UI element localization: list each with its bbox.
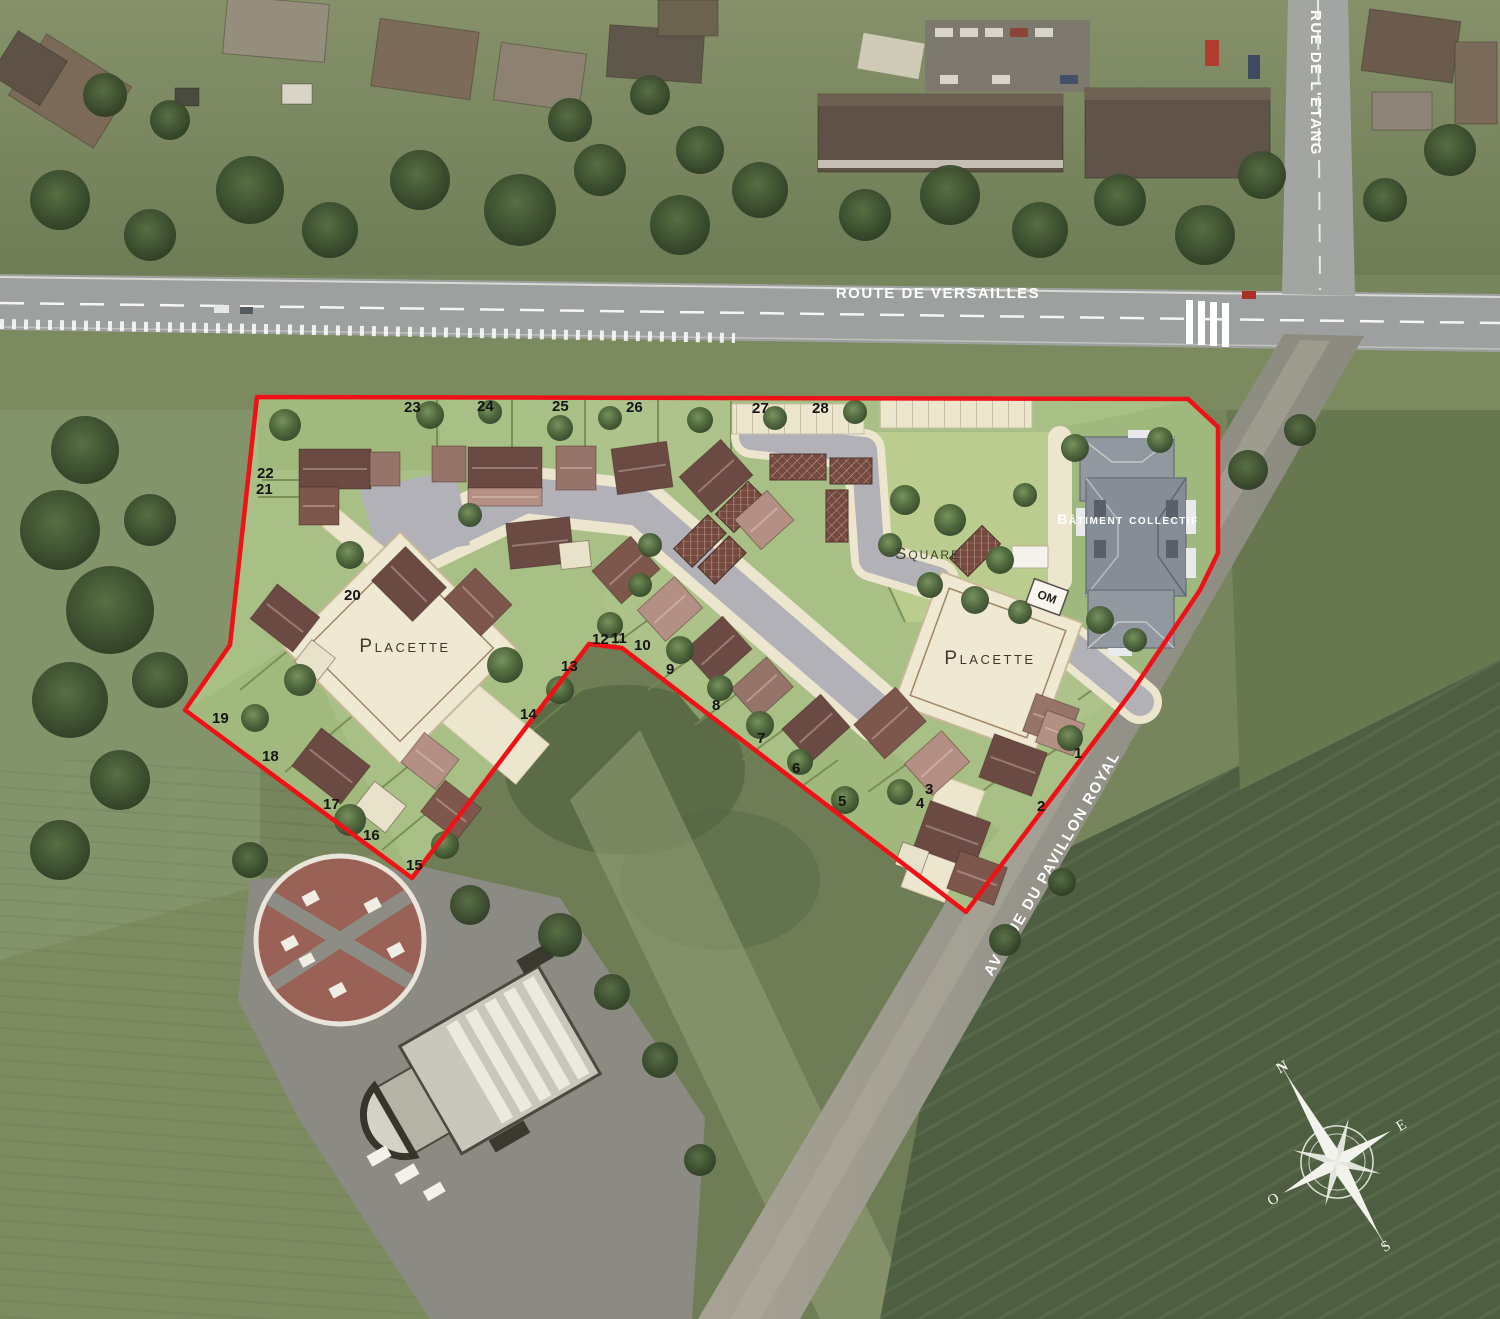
square-label: Square [895,544,961,563]
tree [458,503,482,527]
tree [839,189,891,241]
tree [487,647,523,683]
tree [484,174,556,246]
tree [934,504,966,536]
lot-number: 28 [812,400,829,417]
tree [684,1144,716,1176]
house-roof [559,541,592,570]
tree [666,636,694,664]
tree [887,779,913,805]
lot-number: 22 [257,465,274,482]
lot-number: 12 [592,631,609,648]
car [240,307,253,314]
lot-number: 19 [212,710,229,727]
tree [598,406,622,430]
route-de-versailles-label: ROUTE DE VERSAILLES [836,285,1040,302]
tree [1048,868,1076,896]
tree [30,820,90,880]
lot-number: 16 [363,827,380,844]
lot-number: 24 [477,398,494,415]
aerial-canvas: ROUTE DE VERSAILLES RUE DE L'ETANG AVENU… [0,0,1500,1319]
lot-number: 7 [757,730,765,747]
garden-plot [826,490,848,542]
tree [450,885,490,925]
tree [628,573,652,597]
lot-number: 23 [404,399,421,416]
tree [20,490,100,570]
lot-number: 11 [611,630,627,647]
tree [574,144,626,196]
house-roof [370,452,400,486]
tree [687,407,713,433]
tree [124,209,176,261]
tree [1086,606,1114,634]
tree [548,98,592,142]
tree [638,533,662,557]
tree [32,662,108,738]
tree [989,924,1021,956]
garden-plot [770,454,826,480]
lot-number: 1 [1074,745,1082,762]
tree [232,842,268,878]
lot-number: 5 [838,793,846,810]
tree [1008,600,1032,624]
placette-east-label: Placette [944,648,1035,669]
lot-number: 14 [520,706,537,723]
lot-number: 25 [552,398,569,415]
rue-de-letang-road: RUE DE L'ETANG [1282,0,1355,296]
tree [642,1042,678,1078]
rue-de-letang-label: RUE DE L'ETANG [1307,10,1324,156]
tree [630,75,670,115]
tree [676,126,724,174]
garden-plot [830,458,872,484]
lot-number: 21 [256,481,273,498]
car [214,305,229,313]
tree [594,974,630,1010]
tree [920,165,980,225]
tree [917,572,943,598]
tree [390,150,450,210]
lot-number: 2 [1037,798,1045,815]
tree [336,541,364,569]
tree [961,586,989,614]
tree [269,409,301,441]
tree [83,73,127,117]
tree [1094,174,1146,226]
tree [538,913,582,957]
lot-number: 3 [925,781,933,798]
lot-number: 9 [666,661,674,678]
tree [150,100,190,140]
tree [1013,483,1037,507]
tree [66,566,154,654]
lot-number: 15 [406,857,423,874]
tree [1012,202,1068,258]
tree [1424,124,1476,176]
lot-number: 10 [634,637,651,654]
tree [132,652,188,708]
lot-number: 18 [262,748,279,765]
parking-stalls [880,398,1032,428]
tree [732,162,788,218]
tree [843,400,867,424]
tree [302,202,358,258]
tree [1228,450,1268,490]
lot-number: 8 [712,697,720,714]
house-roof [432,446,466,482]
lot-number: 26 [626,399,643,416]
lot-number: 6 [792,760,800,777]
tree [890,485,920,515]
tree [547,415,573,441]
tree [1284,414,1316,446]
tree [90,750,150,810]
lot-number: 17 [323,796,340,813]
lot-number: 4 [916,795,925,812]
tree [51,416,119,484]
lot-number: 13 [561,658,578,675]
tree [284,664,316,696]
parking-spot [1012,546,1048,568]
tree [986,546,1014,574]
tree [124,494,176,546]
tree [1147,427,1173,453]
tree [650,195,710,255]
lot-number: 27 [752,400,769,417]
tree [1175,205,1235,265]
tree [30,170,90,230]
tree [1238,151,1286,199]
tree [1061,434,1089,462]
tree [1363,178,1407,222]
tree [241,704,269,732]
car [1242,291,1256,299]
placette-west-label: Placette [359,636,450,657]
tree [216,156,284,224]
site-plan-map: ROUTE DE VERSAILLES RUE DE L'ETANG AVENU… [0,0,1500,1319]
batiment-collectif-label: Bâtiment collectif [1057,511,1199,527]
tree [1123,628,1147,652]
lot-number: 20 [344,587,361,604]
